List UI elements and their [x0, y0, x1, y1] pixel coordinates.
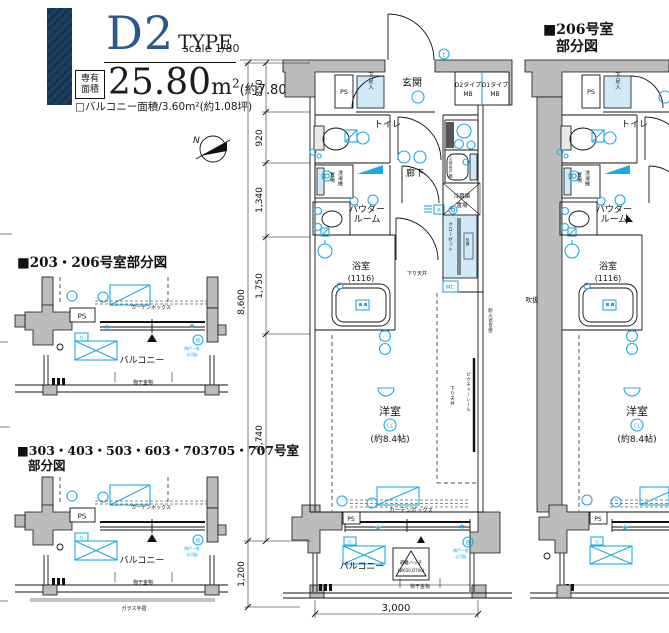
closet-label: クローゼット — [448, 222, 453, 252]
mc-label: MC — [446, 285, 455, 291]
western-room-label: 洋室 — [379, 404, 401, 418]
powder-label-2: ルーム — [354, 214, 381, 225]
floor-plan-drawing: N — [0, 0, 669, 633]
partition-note-2-bottom: 仕切板 — [186, 552, 198, 557]
section-triangle-marker — [417, 536, 425, 543]
b-mark-main: B — [466, 540, 470, 547]
north-compass-icon: N — [193, 136, 230, 162]
laundry-hook-label-main: 物干金物 — [410, 583, 430, 590]
sash-star-mid-right: ★ — [189, 322, 195, 330]
washer-label-2-206: 置場 — [576, 172, 582, 184]
dim-1750: 1,750 — [255, 273, 265, 299]
ps-label-balcony-206: PS — [594, 516, 602, 523]
shoe-box-label: 下足入 — [367, 72, 374, 90]
glass-rail-label: ガラス手摺 — [122, 605, 147, 612]
curtain-box-label-mid: カーテンボックス — [131, 304, 171, 311]
shoe-box-label-206: 下足入 — [614, 72, 621, 90]
t-mark: t — [443, 52, 446, 59]
corridor: 廊下 R 下り天井 — [396, 151, 444, 277]
cl-mark-206: CL — [634, 424, 640, 430]
partition-note-1: 隣戸ー境 — [453, 548, 468, 553]
partition-note-1-mid: 隣戸ー境 — [184, 346, 199, 351]
toilet-label: トイレ — [374, 120, 401, 130]
ps-label-mid: PS — [78, 313, 87, 321]
bath-label: 浴室 — [352, 260, 370, 272]
downlight-icon — [378, 388, 394, 396]
fridge-label-1: 冷蔵庫 — [454, 192, 471, 200]
balcony-label-mid: バルコニー — [120, 355, 165, 366]
hallway-label: 廊下 — [406, 167, 424, 179]
western-room-size: (約8.4帖) — [370, 433, 409, 445]
genkan-label: 玄関 — [402, 76, 422, 89]
balcony-label-main: バルコニー — [340, 561, 385, 572]
balcony-label-bottom: バルコニー — [120, 555, 165, 566]
powder-206: 洗濯機 置場 パウダー ルーム — [560, 165, 669, 236]
dim-850: 850 — [255, 79, 265, 96]
bathroom: 浴室 (1116) — [318, 240, 390, 326]
curtain-box-label-bottom: カーテンボックス — [131, 504, 171, 511]
partition-note-2-mid: 仕切板 — [186, 352, 198, 357]
dim-3000: 3,000 — [382, 603, 411, 614]
b-mark-bottom: B — [196, 538, 200, 545]
powder-label-2-206: ルーム — [601, 214, 628, 225]
bottom-dimension: 3,000 — [312, 600, 481, 618]
powder-room: 洗濯機 置場 パウダー ルーム — [313, 165, 385, 236]
b-mark-mid: B — [196, 338, 200, 345]
meter-boxes: D2タイプ MB D1タイプ MB — [455, 72, 509, 105]
north-label: N — [193, 136, 200, 146]
washer-label-1-206: 洗濯機 — [584, 169, 590, 187]
partition-note-2: 仕切板 — [455, 554, 467, 559]
mb-label-1: MB — [463, 91, 472, 98]
toilet-label-206: トイレ — [621, 120, 648, 130]
partial-plan-303-707: カーテンボックス PS G バルコニー 物干金物 — [15, 477, 228, 612]
kitchen-column: 上部吊戸棚 冷蔵庫 置場 クローゼット 枕棚 MC — [443, 120, 480, 292]
upper-cabinet-label: 上部吊戸棚 — [449, 155, 454, 179]
partition-note-1-bottom: 隣戸ー境 — [184, 546, 199, 551]
sash-star-mid-left: ★ — [104, 323, 110, 331]
western-room-size-206: (約8.4帖) — [617, 433, 656, 445]
picture-rail-label: ピクチャーレール — [466, 372, 471, 412]
mb-d2-label: D2タイプ — [455, 81, 481, 89]
ps-label-balcony: PS — [347, 516, 355, 523]
upper-shelf-icon — [357, 165, 383, 174]
cl-mark: CL — [387, 424, 393, 430]
toilet-206: トイレ — [557, 115, 669, 163]
partial-plan-room206: PS 下足入 トイレ 洗濯機 — [525, 60, 669, 598]
down-ceiling-vertical-label: 下り天井 — [450, 386, 455, 407]
edge-tick-marks — [0, 234, 12, 601]
entrance-door-arc — [388, 14, 434, 60]
void-label: 吹抜 — [526, 295, 540, 304]
floorplan-page: D2TYPE scale 1/80 専有 面積 25.80m2(約7.80坪) … — [0, 0, 669, 633]
bath-206: 浴室 (1116) — [562, 235, 642, 330]
closet-shelf-label: 枕棚 — [465, 237, 470, 246]
bath-size-label: (1116) — [348, 274, 375, 283]
ps-label-entrance: PS — [340, 88, 348, 96]
main-floor-plan: t 玄関 PS 下足入 D2タイプ MB D1タイプ MB — [237, 14, 512, 618]
g-mark-206: G — [595, 540, 599, 546]
room-206: 洋室 CL (約8.4帖) — [562, 331, 669, 513]
sash-star-206: ★ — [621, 523, 628, 532]
curtain-box-label-main: カーテンボックス — [389, 506, 433, 514]
hatch-label-2: (W650,D700) — [398, 568, 425, 573]
toilet-room: トイレ — [310, 117, 441, 160]
fireproof-wall-label: 耐火遮音壁 — [488, 307, 493, 333]
dim-1340: 1,340 — [255, 187, 265, 213]
partial-plan-203-206: カーテンボックス PS ★ ★ G バルコニー 物干金物 — [15, 277, 228, 395]
washer-label-2: 置場 — [329, 172, 335, 184]
r-box-label: R — [437, 208, 441, 214]
down-ceiling-note: 下り天井 — [407, 270, 427, 277]
dim-3740: 3,740 — [255, 425, 265, 451]
sash-star-right: ★ — [458, 522, 465, 531]
dim-1200: 1,200 — [237, 561, 247, 587]
washer-label-1: 洗濯機 — [337, 169, 343, 187]
bath-label-206: 浴室 — [599, 260, 617, 272]
mb-label-2: MB — [490, 91, 499, 98]
g-mark-main: G — [348, 540, 352, 546]
mb-d1-label: D1タイプ — [482, 81, 508, 89]
fridge-label-2: 置場 — [456, 201, 468, 209]
ps-label-206: PS — [587, 88, 595, 96]
bath-size-label-206: (1116) — [595, 274, 622, 283]
sash-star-left: ★ — [374, 523, 381, 532]
arrow-cursor-mark — [626, 214, 633, 224]
hatch-label-1: 避難ハッチ — [400, 559, 423, 566]
dim-920: 920 — [255, 129, 265, 146]
dim-8600: 8,600 — [237, 289, 247, 315]
ps-label-bottom: PS — [78, 513, 87, 521]
western-room-label-206: 洋室 — [626, 404, 648, 418]
